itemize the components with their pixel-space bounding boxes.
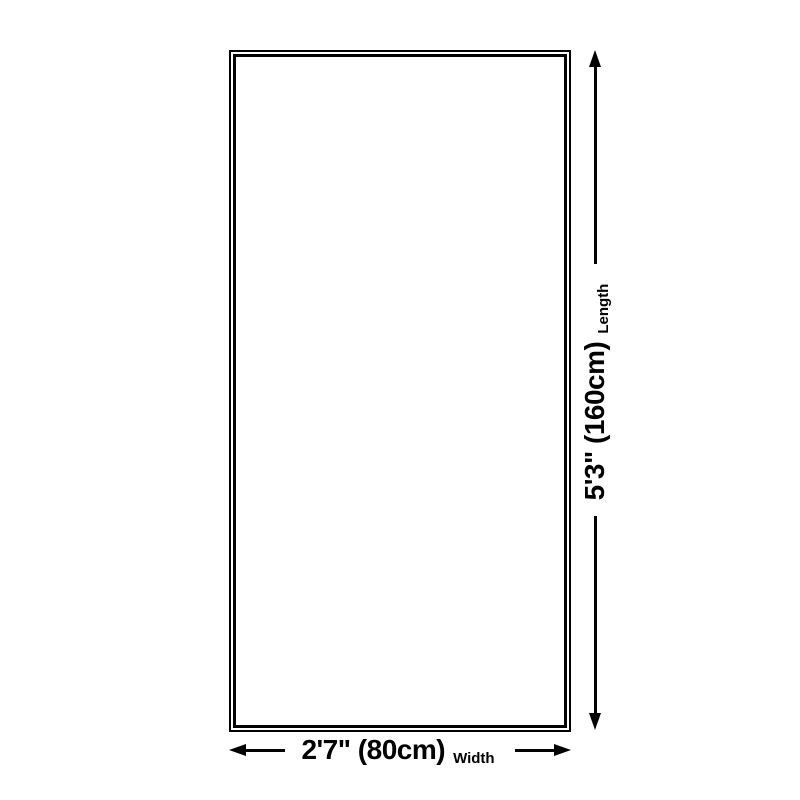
- length-value-label: 5'3" (160cm): [577, 342, 613, 501]
- dimension-diagram: 2'7" (80cm) Width 5'3" (160cm) Length: [0, 0, 800, 800]
- arrowhead-right-icon: [554, 744, 571, 756]
- width-name-label: Width: [453, 750, 495, 768]
- width-dimension: 2'7" (80cm) Width: [229, 728, 571, 772]
- product-outline-rect: [229, 50, 571, 732]
- product-inner-border: [233, 54, 567, 728]
- width-dimension-line-left: [246, 749, 285, 752]
- length-name-label: Length: [595, 284, 613, 334]
- arrowhead-left-icon: [229, 744, 246, 756]
- length-dimension-line-top: [594, 67, 597, 264]
- length-dimension-line-bottom: [594, 516, 597, 713]
- width-dimension-line-right: [515, 749, 554, 752]
- arrowhead-down-icon: [589, 713, 601, 730]
- arrowhead-up-icon: [589, 50, 601, 67]
- length-dimension: 5'3" (160cm) Length: [573, 50, 617, 730]
- width-value-label: 2'7" (80cm): [301, 732, 445, 768]
